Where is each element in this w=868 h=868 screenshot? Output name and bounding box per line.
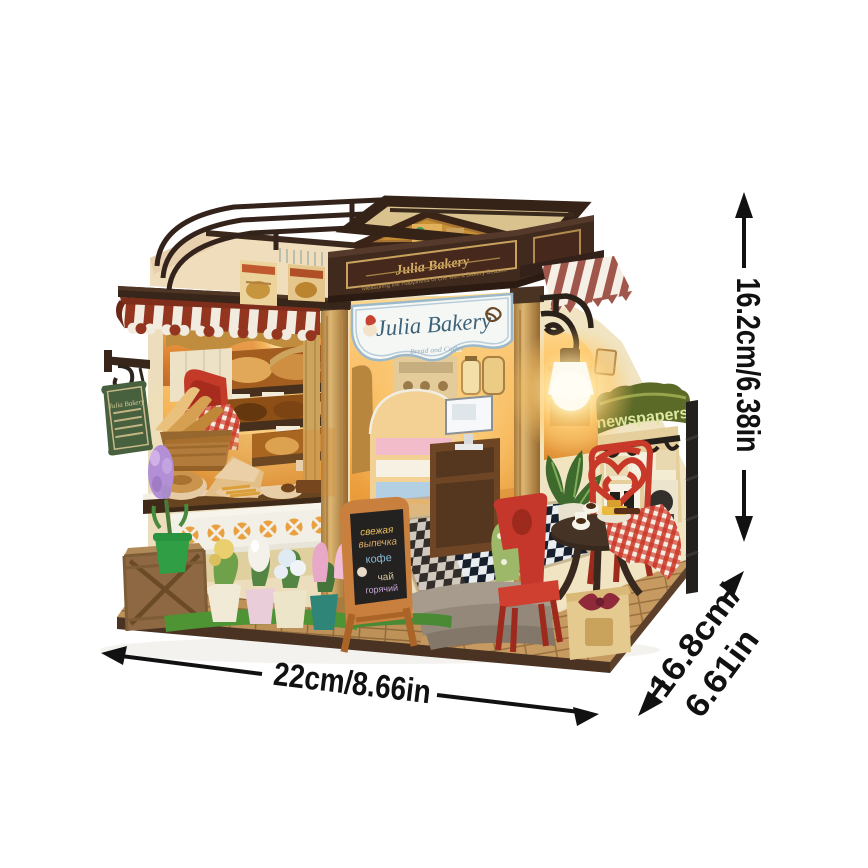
svg-text:чай: чай [377,571,394,583]
svg-text:кофе: кофе [365,552,392,566]
svg-text:16.2cm/6.38in: 16.2cm/6.38in [730,278,767,453]
